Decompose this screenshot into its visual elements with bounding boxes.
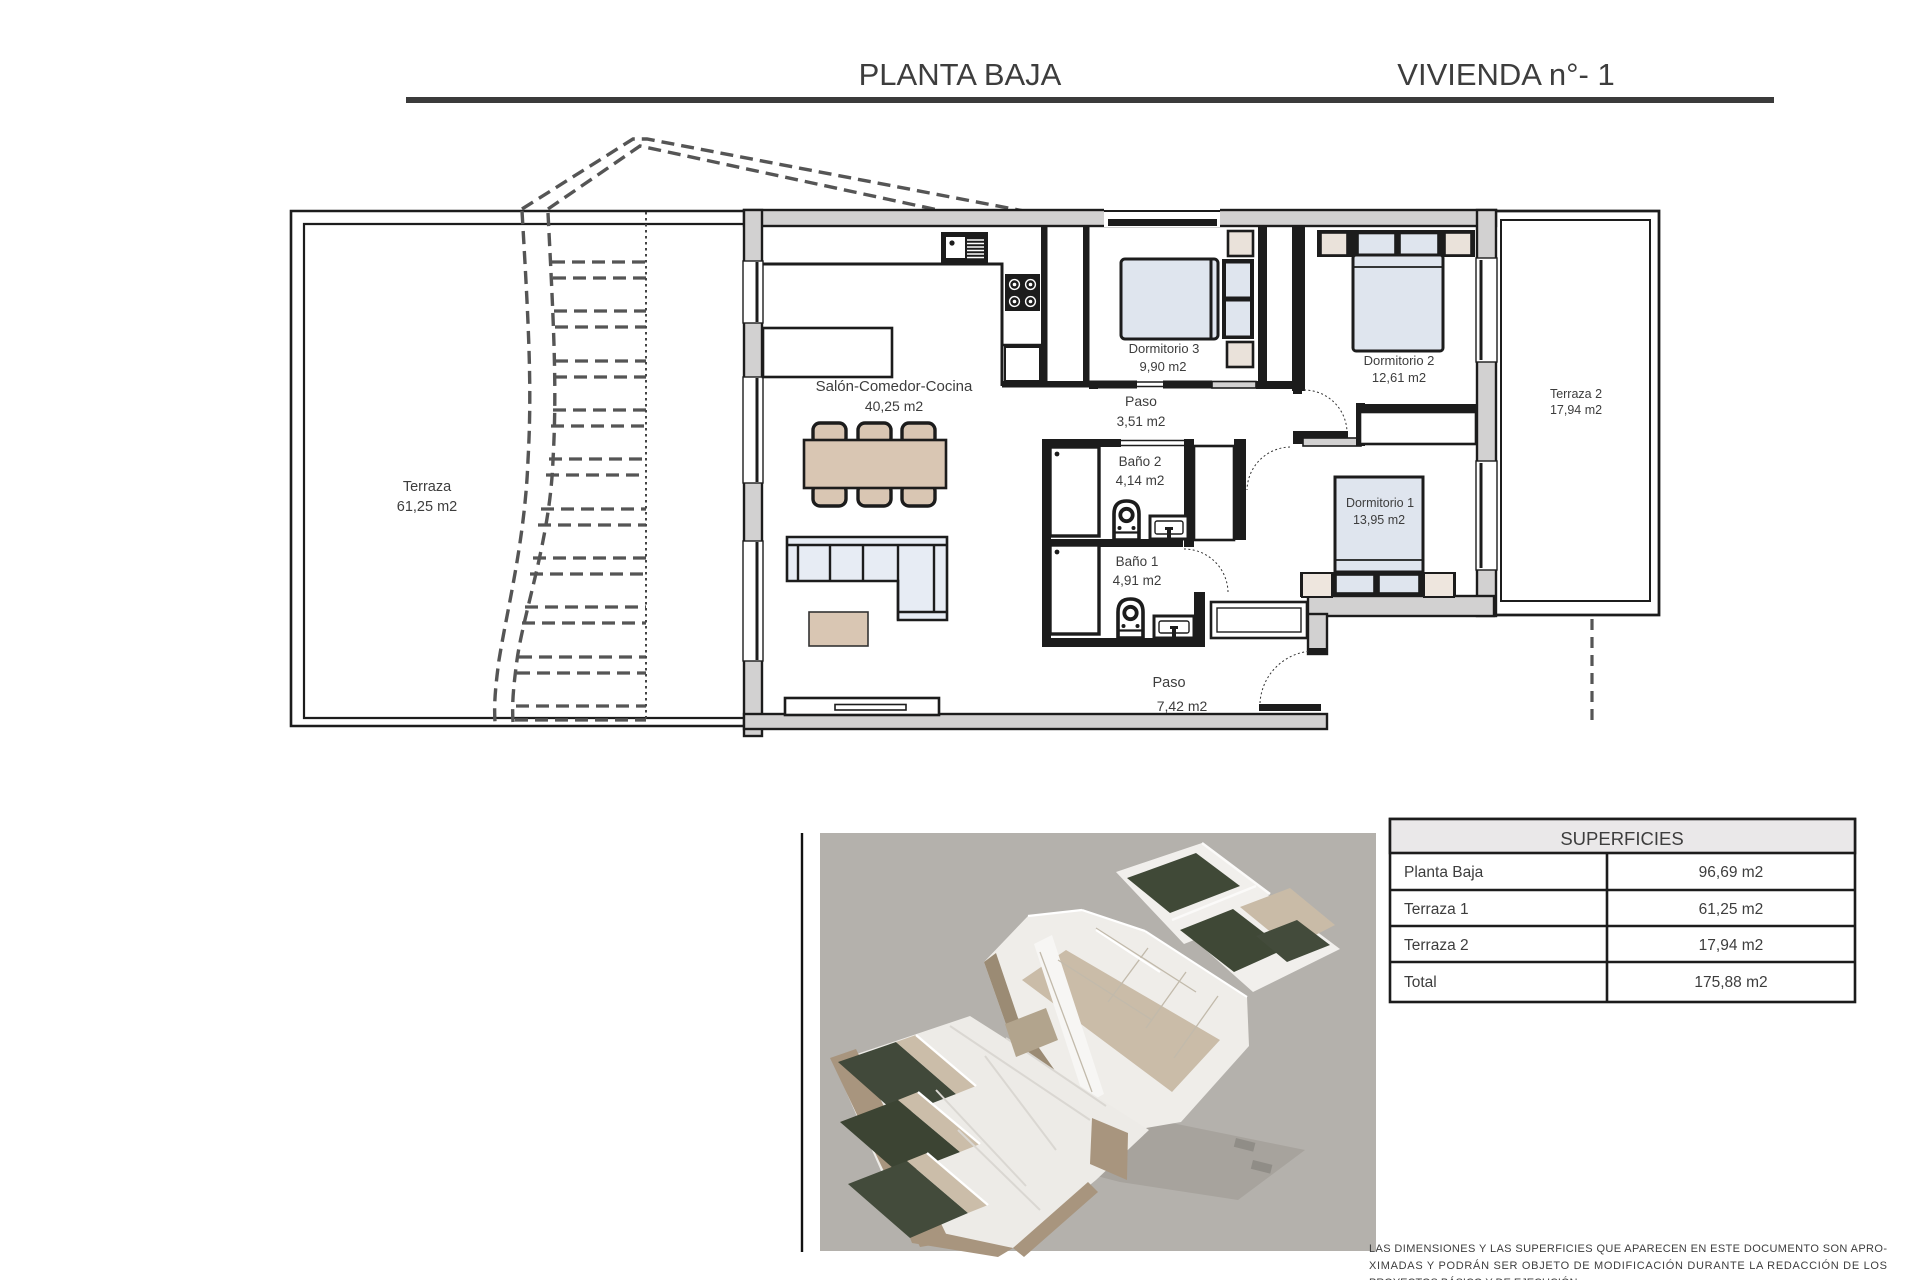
svg-text:Terraza: Terraza (403, 479, 452, 495)
svg-text:17,94 m2: 17,94 m2 (1699, 937, 1764, 954)
svg-text:175,88 m2: 175,88 m2 (1694, 974, 1767, 991)
svg-text:Terraza 1: Terraza 1 (1404, 901, 1469, 918)
svg-text:Dormitorio 1: Dormitorio 1 (1346, 496, 1414, 510)
svg-text:Paso: Paso (1152, 675, 1185, 691)
svg-text:Salón-Comedor-Cocina: Salón-Comedor-Cocina (816, 378, 973, 395)
svg-text:Dormitorio 3: Dormitorio 3 (1129, 341, 1200, 356)
svg-text:61,25 m2: 61,25 m2 (397, 499, 457, 515)
svg-text:Baño 1: Baño 1 (1116, 554, 1159, 569)
svg-text:Total: Total (1404, 974, 1437, 991)
svg-text:XIMADAS Y PODRÁN SER OBJETO DE: XIMADAS Y PODRÁN SER OBJETO DE MODIFICAC… (1369, 1259, 1887, 1272)
svg-text:40,25 m2: 40,25 m2 (865, 398, 924, 414)
svg-text:Dormitorio 2: Dormitorio 2 (1364, 353, 1435, 368)
svg-text:13,95 m2: 13,95 m2 (1353, 513, 1405, 527)
svg-text:Terraza 2: Terraza 2 (1550, 387, 1602, 401)
svg-text:PLANTA BAJA: PLANTA BAJA (859, 57, 1062, 92)
svg-text:12,61 m2: 12,61 m2 (1372, 370, 1426, 385)
svg-text:Baño 2: Baño 2 (1119, 454, 1162, 469)
svg-text:61,25 m2: 61,25 m2 (1699, 901, 1764, 918)
svg-text:LAS DIMENSIONES Y LAS SUPERFIC: LAS DIMENSIONES Y LAS SUPERFICIES QUE AP… (1369, 1243, 1887, 1255)
svg-text:VIVIENDA n°- 1: VIVIENDA n°- 1 (1397, 57, 1614, 92)
svg-text:96,69 m2: 96,69 m2 (1699, 864, 1764, 881)
svg-text:7,42 m2: 7,42 m2 (1157, 698, 1208, 714)
svg-text:17,94 m2: 17,94 m2 (1550, 403, 1602, 417)
svg-text:9,90 m2: 9,90 m2 (1140, 359, 1187, 374)
svg-text:PROYECTOS BÁSICO Y DE EJECUCIÓ: PROYECTOS BÁSICO Y DE EJECUCIÓN. (1369, 1276, 1581, 1280)
svg-text:4,91 m2: 4,91 m2 (1113, 573, 1162, 588)
svg-text:Terraza 2: Terraza 2 (1404, 937, 1469, 954)
svg-text:4,14 m2: 4,14 m2 (1116, 473, 1165, 488)
svg-text:Planta Baja: Planta Baja (1404, 864, 1484, 881)
svg-text:3,51 m2: 3,51 m2 (1117, 414, 1166, 429)
svg-text:SUPERFICIES: SUPERFICIES (1560, 828, 1683, 849)
svg-text:Paso: Paso (1125, 393, 1157, 409)
